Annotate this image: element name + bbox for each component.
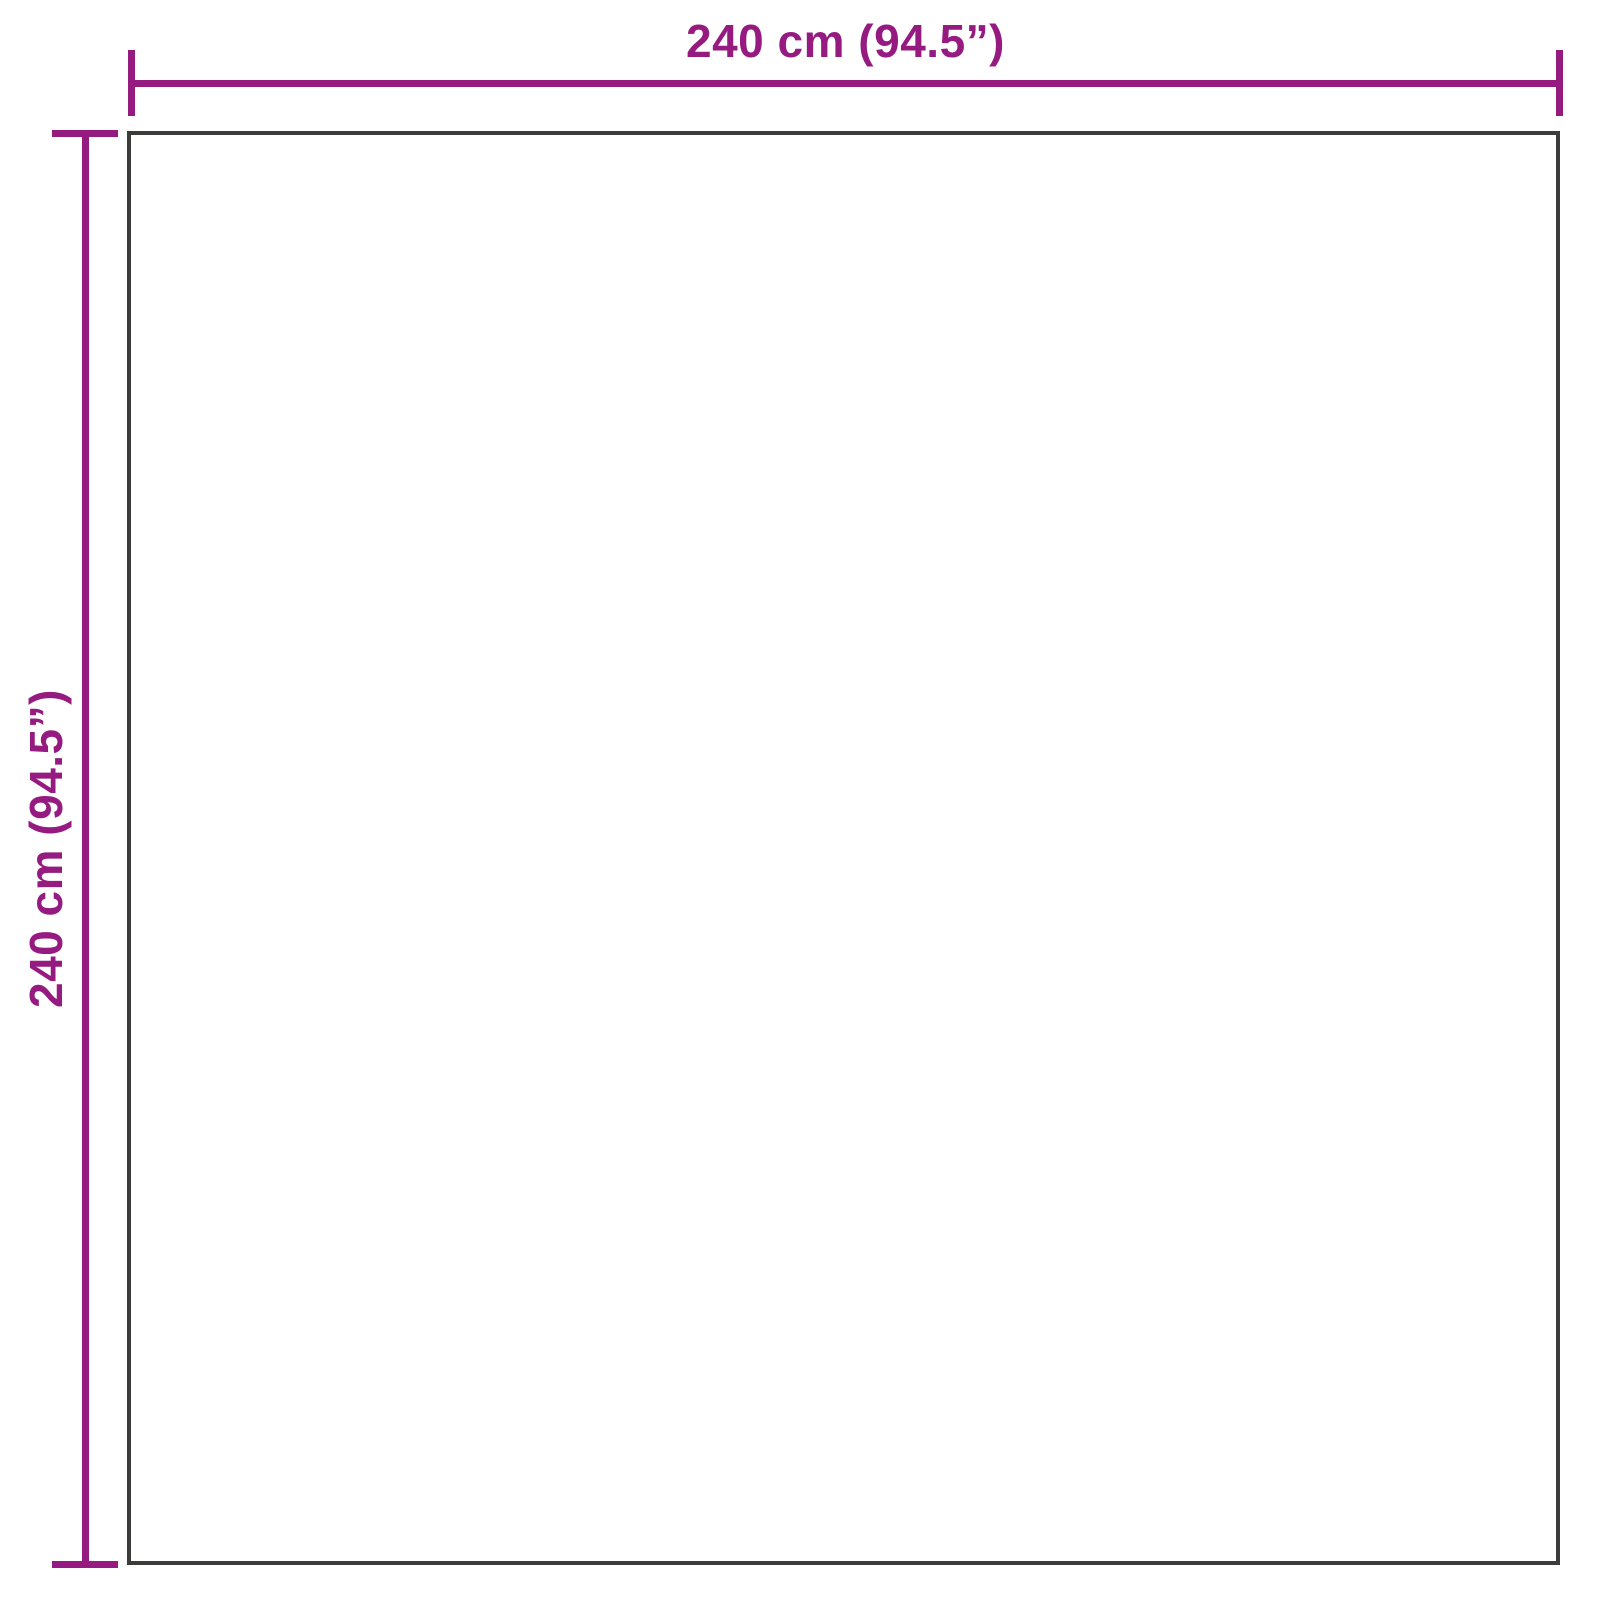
left-dimension-label: 240 cm (94.5”) (0, 133, 92, 1564)
top-dimension-label: 240 cm (94.5”) (131, 14, 1560, 69)
top-dimension-line (131, 80, 1560, 87)
dimension-diagram: 240 cm (94.5”) 240 cm (94.5”) (0, 0, 1600, 1600)
product-outline (127, 131, 1560, 1565)
